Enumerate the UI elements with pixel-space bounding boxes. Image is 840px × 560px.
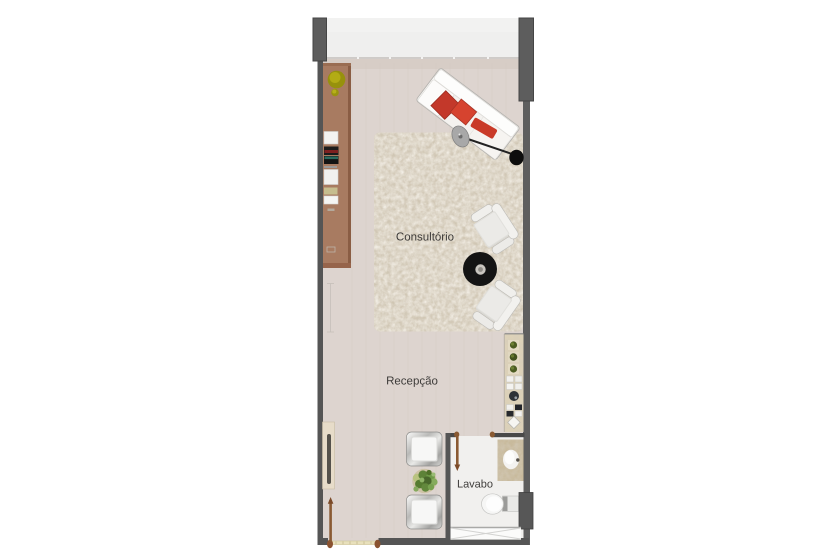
svg-text:Lavabo: Lavabo <box>457 478 493 490</box>
svg-text:Recepção: Recepção <box>386 375 438 387</box>
svg-text:Consultório: Consultório <box>396 231 454 243</box>
